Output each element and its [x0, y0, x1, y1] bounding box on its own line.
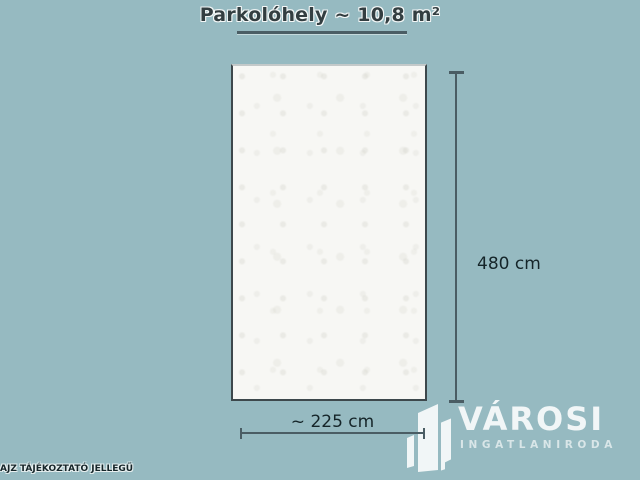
agency-logo: VÁROSI INGATLANIRODA [404, 398, 634, 478]
width-dimension-line [240, 428, 425, 439]
logo-subtitle: INGATLANIRODA [460, 439, 617, 451]
disclaimer-text: AJZ TÁJÉKOZTATÓ JELLEGŰ [0, 464, 133, 474]
dimension-line-horizontal [240, 432, 425, 434]
floorplan-canvas: Parkolóhely ~ 10,8 m² 480 cm VÁROSI INGA… [0, 0, 640, 480]
page-title: Parkolóhely ~ 10,8 m² [0, 4, 640, 26]
dimension-line-vertical [455, 71, 457, 403]
parking-space-rect [231, 64, 427, 401]
dimension-tick-right [423, 428, 425, 439]
logo-name: VÁROSI [458, 400, 604, 438]
title-underline [237, 31, 407, 34]
height-dimension-line [449, 71, 464, 403]
height-dimension-label: 480 cm [477, 254, 541, 274]
